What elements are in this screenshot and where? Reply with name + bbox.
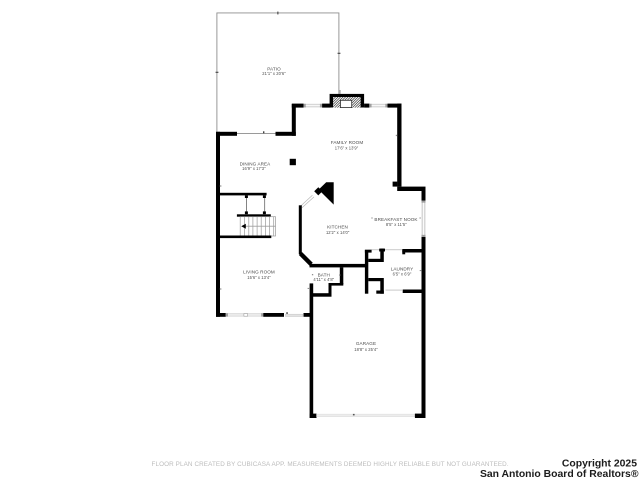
svg-text:FAMILY ROOM: FAMILY ROOM bbox=[331, 140, 364, 145]
svg-text:LIVING ROOM: LIVING ROOM bbox=[243, 270, 275, 275]
svg-text:GARAGE: GARAGE bbox=[356, 341, 376, 346]
svg-text:8'5" x 11'5": 8'5" x 11'5" bbox=[386, 222, 407, 227]
svg-text:6'5" x 6'9": 6'5" x 6'9" bbox=[393, 271, 412, 276]
svg-text:San Antonio Board of Realtors®: San Antonio Board of Realtors® bbox=[480, 469, 639, 480]
svg-text:KITCHEN: KITCHEN bbox=[327, 225, 348, 230]
svg-text:16'9" x 17'3": 16'9" x 17'3" bbox=[242, 166, 266, 171]
svg-text:12'2" x 14'0": 12'2" x 14'0" bbox=[326, 230, 350, 235]
svg-text:FLOOR PLAN CREATED BY CUBICASA: FLOOR PLAN CREATED BY CUBICASA APP. MEAS… bbox=[152, 461, 509, 468]
svg-text:21'1" x 20'6": 21'1" x 20'6" bbox=[262, 71, 286, 76]
svg-text:BREAKFAST NOOK: BREAKFAST NOOK bbox=[374, 217, 418, 222]
svg-text:Copyright 2025: Copyright 2025 bbox=[562, 458, 637, 469]
svg-text:18'8" x 25'4": 18'8" x 25'4" bbox=[354, 347, 378, 352]
svg-text:15'6" x 13'4": 15'6" x 13'4" bbox=[247, 275, 271, 280]
svg-text:17'6" x 13'9": 17'6" x 13'9" bbox=[335, 146, 359, 151]
svg-text:4'11" x 4'8": 4'11" x 4'8" bbox=[313, 277, 334, 282]
